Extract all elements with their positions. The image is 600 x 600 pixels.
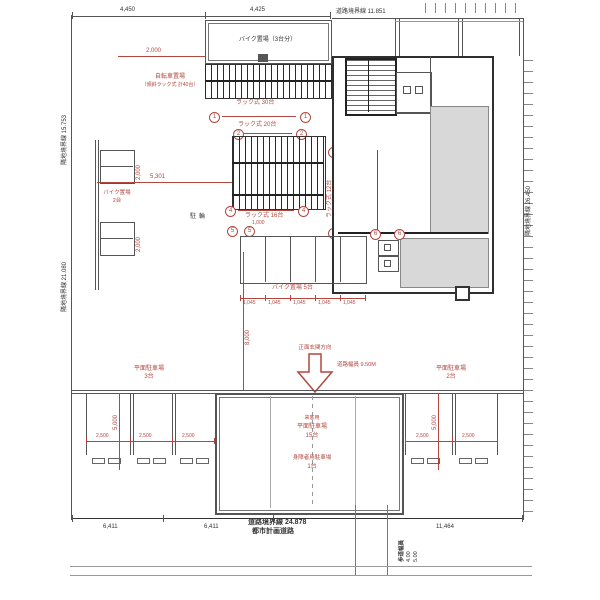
moto2-label-1: バイク置場 bbox=[98, 190, 136, 196]
staircase bbox=[345, 58, 397, 116]
dim-stall: 1,045 bbox=[293, 301, 306, 307]
left-lot-label-1: 平面駐車場 bbox=[114, 366, 184, 373]
dim-bottom: 6,411 bbox=[204, 524, 219, 531]
fence-line bbox=[98, 140, 99, 290]
center-lot-label-4: 身障者用駐車場 bbox=[272, 455, 352, 461]
rack-row3-arrow bbox=[238, 210, 294, 211]
road-line bbox=[70, 566, 532, 567]
right-lot-label-2: 2台 bbox=[405, 374, 497, 381]
center-dashed-line bbox=[312, 396, 313, 508]
moto5-dim-chain bbox=[240, 298, 365, 299]
left-stalls-dimline bbox=[86, 441, 215, 442]
parking-top-line bbox=[72, 390, 523, 391]
dim-rack-pitch: 1,000 bbox=[252, 221, 265, 227]
shelter-label: バイク置場（3台分） bbox=[205, 37, 330, 44]
lobby-area bbox=[400, 238, 489, 288]
fence-line bbox=[95, 140, 96, 290]
rack-row1-label: ラック式 30台 bbox=[236, 100, 274, 107]
moto2-label-2: 2台 bbox=[98, 198, 136, 204]
boundary-right-hatch bbox=[524, 60, 533, 515]
dim-right-depth: 5,000 bbox=[432, 415, 439, 430]
boundary-label-left-top: 隣地境界線 15.753 bbox=[62, 115, 69, 165]
bicycle-rack-middle bbox=[232, 136, 326, 210]
dim-stall: 1,045 bbox=[243, 301, 256, 307]
top-dim-line bbox=[72, 16, 330, 17]
bicycle-area-label-1: 自転車置場 bbox=[115, 74, 225, 81]
section-marker: 6 bbox=[394, 229, 405, 240]
moto5-label: バイク置場 5台 bbox=[272, 285, 313, 292]
moto-stall-group2 bbox=[100, 222, 135, 256]
yard-label: 駐輪 bbox=[190, 214, 208, 221]
center-lot-label-1: 来客用 bbox=[272, 416, 352, 422]
sidewalk-width-2: 5.00 bbox=[413, 551, 419, 562]
left-lot-label-2: 3台 bbox=[114, 374, 184, 381]
boundary-label-bottom-1: 道路境界線 24.878 bbox=[248, 519, 306, 527]
rack-row2-label: ラック式 20台 bbox=[238, 122, 276, 129]
boundary-top-hatch bbox=[425, 3, 523, 13]
section-marker: 4 bbox=[225, 206, 236, 217]
dim-approach: 8,000 bbox=[245, 330, 252, 345]
shelter-offset-dimline bbox=[118, 56, 205, 57]
approach-dimline bbox=[243, 252, 244, 390]
rack-row1-arrow bbox=[222, 116, 296, 117]
boundary-label-bottom-2: 都市計画道路 bbox=[252, 528, 294, 536]
dim-bottom: 6,411 bbox=[103, 524, 118, 531]
dim-left-stall: 2,500 bbox=[96, 434, 109, 440]
dim-moto2: 2,000 bbox=[136, 237, 143, 252]
moto-stall-group1 bbox=[100, 150, 135, 184]
dim-bottom: 11,464 bbox=[436, 524, 454, 531]
right-stalls-dimline bbox=[405, 441, 497, 442]
center-parking-outline bbox=[215, 393, 404, 515]
dim-top-right: 4,425 bbox=[250, 7, 265, 14]
dim-left-depth: 5,000 bbox=[113, 415, 120, 430]
center-lot-label-2: 平面駐車場 bbox=[272, 424, 352, 431]
sidewalk-width-1: 4.00 bbox=[406, 551, 412, 562]
curb-cut-line bbox=[387, 505, 388, 575]
dim-left-stall: 2,500 bbox=[182, 434, 195, 440]
entrance-column bbox=[455, 286, 470, 301]
section-marker: 5 bbox=[227, 226, 238, 237]
shelter-post bbox=[258, 54, 268, 62]
entrance-arrow-icon bbox=[296, 353, 334, 393]
boundary-label-top: 道路境界線 11.851 bbox=[336, 9, 386, 16]
service-room bbox=[430, 106, 489, 234]
entrance-direction-label: 正面玄関方向 bbox=[285, 345, 345, 351]
right-lot-label-1: 平面駐車場 bbox=[405, 366, 497, 373]
dim-shelter-offset: 2,000 bbox=[146, 48, 161, 55]
dim-right-stall: 2,500 bbox=[462, 434, 475, 440]
boundary-label-left-bottom: 隣地境界線 21.080 bbox=[62, 262, 69, 312]
section-marker: 4 bbox=[298, 206, 309, 217]
boundary-label-right: 隣地境界線 26.450 bbox=[526, 186, 533, 236]
boundary-top-road-line bbox=[332, 18, 523, 19]
road-line bbox=[70, 575, 532, 576]
rack-row3-label: ラック式 16台 bbox=[245, 213, 283, 220]
dim-moto1: 2,000 bbox=[136, 165, 143, 180]
section-marker: 6 bbox=[370, 229, 381, 240]
curb-cut-line bbox=[355, 505, 356, 575]
dim-rack-width: 5,301 bbox=[150, 174, 165, 181]
dim-stall: 1,045 bbox=[318, 301, 331, 307]
rack-row2-arrow bbox=[244, 133, 292, 134]
section-marker: 1 bbox=[209, 112, 220, 123]
site-plan-drawing: 隣地境界線 15.753 隣地境界線 21.080 隣地境界線 26.450 4… bbox=[0, 0, 600, 600]
sidewalk-label: 歩道幅員 bbox=[399, 540, 405, 562]
center-lot-label-3: 15台 bbox=[272, 433, 352, 440]
dim-stall: 1,045 bbox=[343, 301, 356, 307]
dim-top-left: 4,450 bbox=[120, 7, 135, 14]
rack-width-dimline bbox=[97, 182, 232, 183]
center-lot-label-5: 1台 bbox=[272, 464, 352, 471]
dim-stall: 1,045 bbox=[268, 301, 281, 307]
boundary-left-line bbox=[71, 15, 72, 520]
moto5-stalls bbox=[240, 236, 367, 284]
dim-right-stall: 2,500 bbox=[416, 434, 429, 440]
section-marker: 1 bbox=[300, 112, 311, 123]
road-width-label: 道路幅員 9.50M bbox=[337, 362, 376, 368]
elevator-shaft bbox=[396, 72, 432, 114]
dim-left-stall: 2,500 bbox=[139, 434, 152, 440]
bicycle-area-label-2: （傾斜ラック式 計40台） bbox=[115, 83, 225, 89]
